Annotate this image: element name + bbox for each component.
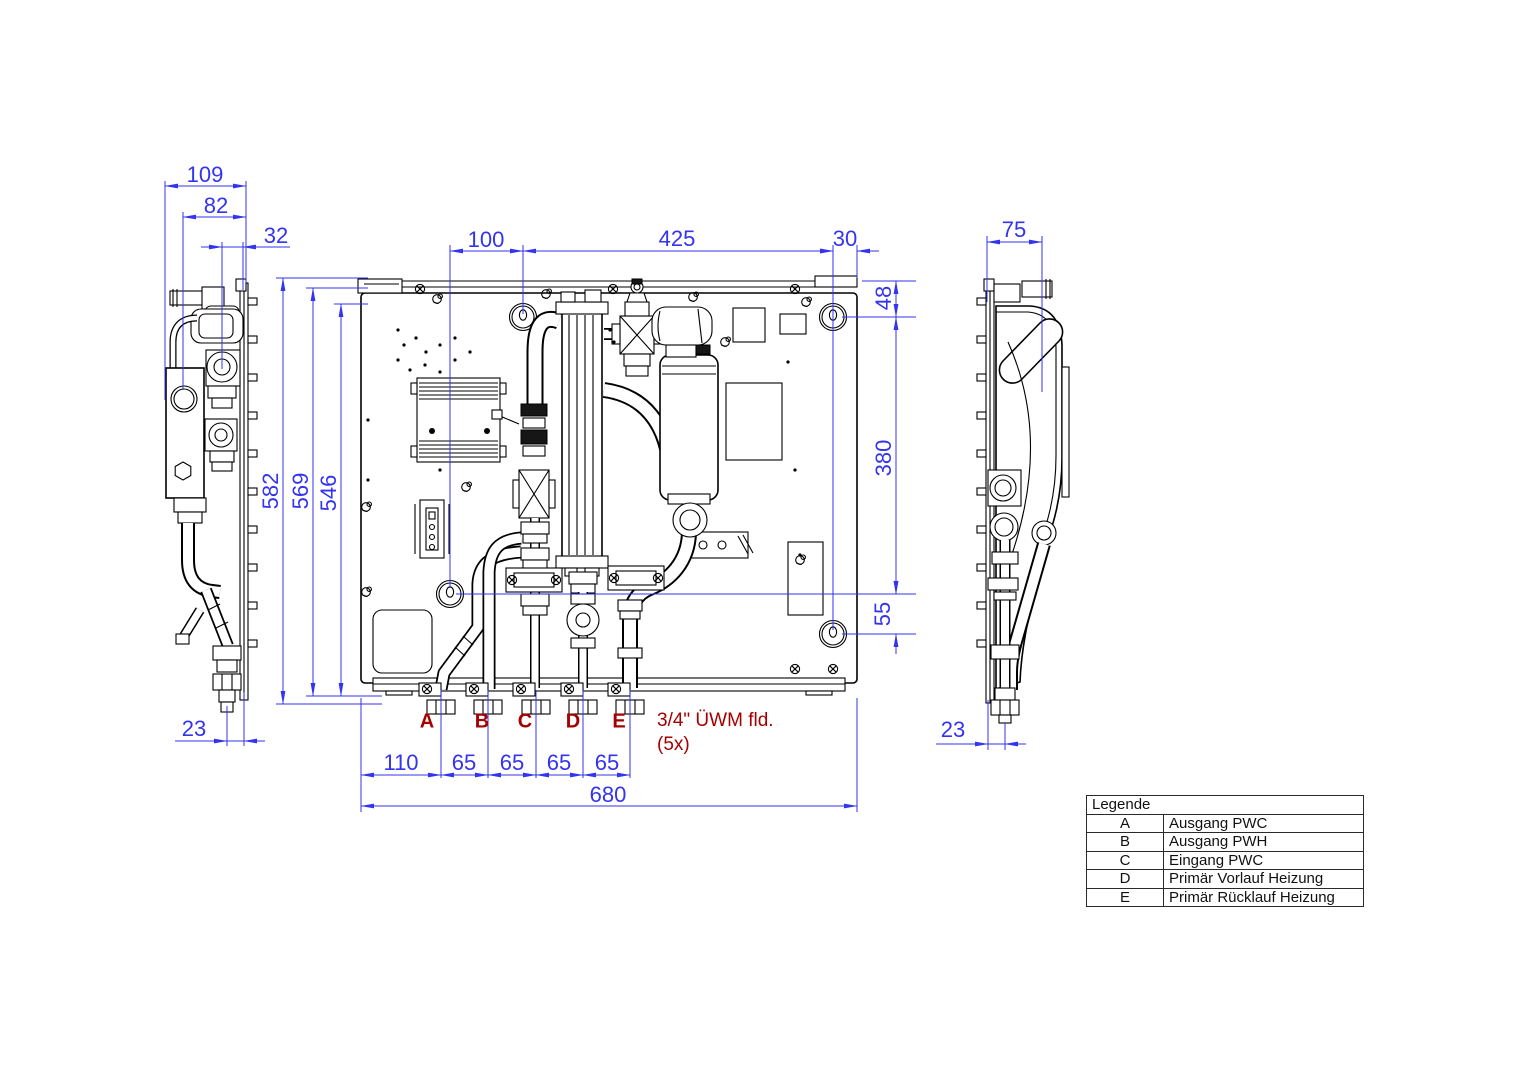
controller-box	[411, 378, 506, 462]
dim-65-2: 65	[500, 752, 524, 774]
legend-desc: Primär Vorlauf Heizung	[1164, 870, 1364, 889]
connection-size-note: 3/4" ÜWM fld.	[657, 710, 774, 732]
legend-key: B	[1087, 833, 1164, 852]
legend-row: D Primär Vorlauf Heizung	[1087, 870, 1364, 889]
dim-569: 569	[290, 473, 312, 510]
legend-row: A Ausgang PWC	[1087, 814, 1364, 833]
connection-label-e: E	[612, 711, 625, 734]
left-side-view	[166, 279, 257, 712]
legend-row: C Eingang PWC	[1087, 851, 1364, 870]
dim-55: 55	[872, 602, 894, 626]
dim-65-3: 65	[547, 752, 571, 774]
technical-drawing-canvas: 109 82 32 23 100 425 30 582 569 546 48 3…	[0, 0, 1528, 1080]
dim-23-right: 23	[941, 719, 965, 741]
legend-row: E Primär Rücklauf Heizung	[1087, 888, 1364, 907]
dim-582: 582	[260, 473, 282, 510]
dim-100: 100	[468, 229, 505, 251]
connection-label-b: B	[475, 711, 489, 734]
drawing-linework	[0, 0, 1528, 1080]
connection-count-note: (5x)	[657, 734, 690, 756]
dim-30: 30	[833, 228, 857, 250]
dim-425: 425	[659, 228, 696, 250]
legend-table: Legende A Ausgang PWC B Ausgang PWH C Ei…	[1086, 795, 1364, 907]
legend-desc: Primär Rücklauf Heizung	[1164, 888, 1364, 907]
heat-exchanger	[556, 290, 608, 576]
dim-680: 680	[590, 784, 627, 806]
legend-key: E	[1087, 888, 1164, 907]
front-view	[358, 276, 857, 714]
dim-65-4: 65	[595, 752, 619, 774]
legend-row: B Ausgang PWH	[1087, 833, 1364, 852]
right-side-view	[977, 279, 1069, 723]
dim-380: 380	[873, 440, 895, 477]
legend-key: A	[1087, 814, 1164, 833]
dim-110: 110	[383, 752, 418, 774]
dim-23-left: 23	[182, 718, 206, 740]
dim-109: 109	[187, 164, 224, 186]
dim-75: 75	[1002, 219, 1026, 241]
dim-32: 32	[264, 225, 288, 247]
legend-desc: Ausgang PWH	[1164, 833, 1364, 852]
dim-48: 48	[873, 286, 895, 310]
connection-label-c: C	[518, 711, 532, 734]
dim-546: 546	[318, 475, 340, 512]
legend-key: C	[1087, 851, 1164, 870]
legend-desc: Eingang PWC	[1164, 851, 1364, 870]
legend-key: D	[1087, 870, 1164, 889]
legend-title: Legende	[1087, 796, 1364, 815]
connection-label-d: D	[566, 711, 580, 734]
dim-82: 82	[204, 195, 228, 217]
dim-65-1: 65	[452, 752, 476, 774]
connection-label-a: A	[420, 711, 434, 734]
legend-desc: Ausgang PWC	[1164, 814, 1364, 833]
